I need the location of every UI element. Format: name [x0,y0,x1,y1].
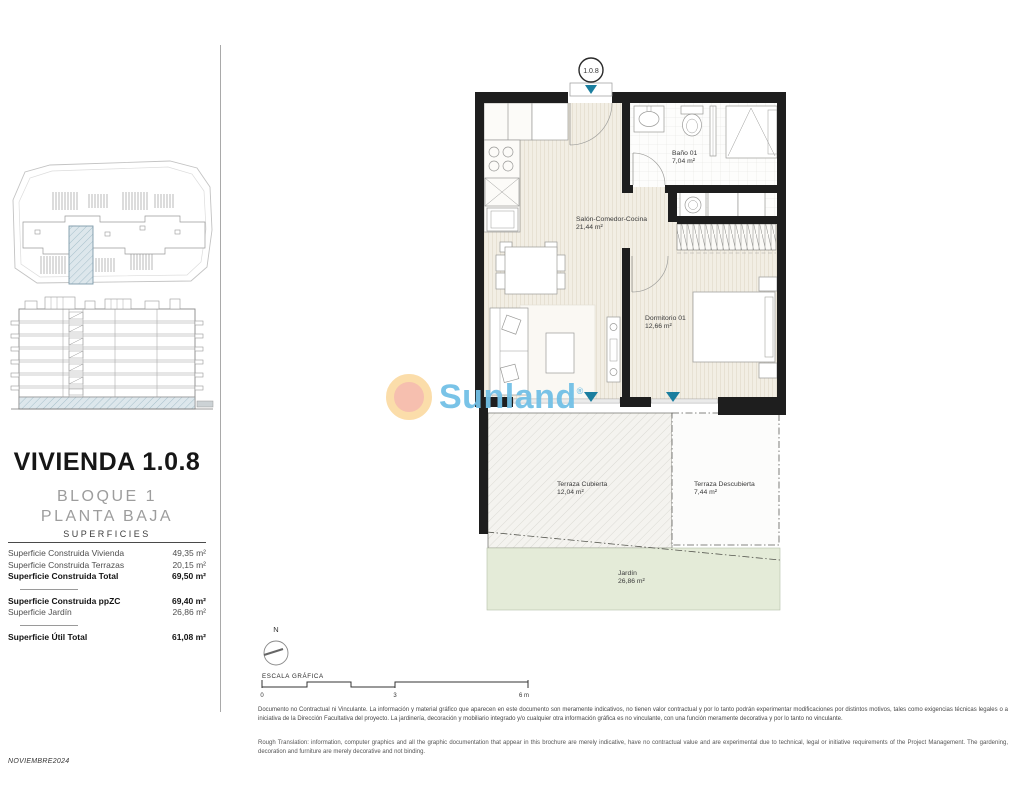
dining-set [496,242,565,294]
fridge [532,103,568,140]
table-row-total: Superficie Construida Total 69,50 m² [8,571,206,583]
block-label: BLOQUE 1 [0,487,214,507]
plan-sheet: VIVIENDA 1.0.8 BLOQUE 1 PLANTA BAJA SUPE… [0,0,1024,800]
svg-text:6 m: 6 m [519,693,529,699]
highlighted-floor [19,397,195,409]
floor-plan: 1.0.8 Salón-Comedor-Cocina 21,44 m² Baño… [450,55,815,620]
building-elevation-diagram [5,291,217,429]
disclaimer-english: Rough Translation: information, computer… [258,739,1008,758]
kitchen-sink [487,208,518,231]
unit-marker-label: 1.0.8 [583,68,599,75]
column-divider [220,45,221,712]
subtitle: BLOQUE 1 PLANTA BAJA [0,487,214,527]
date-code: NOVIEMBRE2024 [8,758,69,765]
table-divider [20,589,78,590]
north-label: N [273,625,278,634]
svg-text:3: 3 [393,693,397,699]
scale-bar [262,680,528,688]
coffee-table [546,333,574,373]
table-row: Superficie Construida ppZC 69,40 m² [8,596,206,608]
terrace-open [672,413,779,545]
floor-label: PLANTA BAJA [0,507,214,527]
disclaimer-spanish: Documento no Contractual ni Vinculante. … [258,706,1008,725]
svg-text:0: 0 [260,693,264,699]
highlighted-unit [69,226,93,284]
bath-sink [634,106,664,132]
sliding-doors [513,399,718,403]
toilet [683,114,702,136]
tv-unit [607,317,620,382]
scale-block: N ESCALA GRÁFICA 0 3 6 m [250,616,540,704]
table-row: Superficie Construida Vivienda 49,35 m² [8,548,206,560]
site-plan-diagram [5,152,217,294]
areas-table: SUPERFICIES Superficie Construida Vivien… [8,529,206,643]
laundry [680,192,765,218]
nightstand [759,277,777,291]
sun-logo-icon [386,374,432,420]
areas-table-title: SUPERFICIES [8,529,206,543]
page-title: VIVIENDA 1.0.8 [0,448,214,477]
table-row-total: Superficie Útil Total 61,08 m² [8,632,206,644]
toilet-tank [681,106,703,114]
wardrobe [677,224,776,250]
scale-label: ESCALA GRÁFICA [262,673,324,680]
shower [726,106,777,158]
table-row: Superficie Construida Terrazas 20,15 m² [8,560,206,572]
table-row: Superficie Jardín 26,86 m² [8,607,206,619]
table-divider [20,625,78,626]
sofa [490,308,528,395]
washing-machine [680,192,706,218]
nightstand [759,363,777,378]
